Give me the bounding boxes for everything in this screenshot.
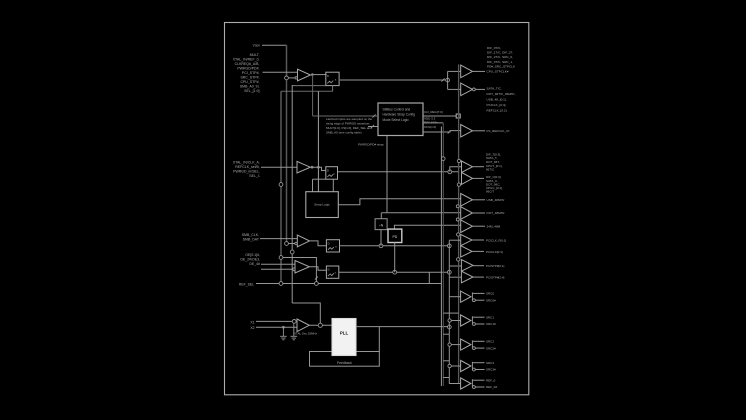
svg-text:Feedback: Feedback	[337, 361, 352, 365]
svg-text:DIF_1T/C, DIF_2T,: DIF_1T/C, DIF_2T,	[487, 51, 513, 55]
svg-text:XTAL_IN/REF_0,: XTAL_IN/REF_0,	[233, 57, 260, 61]
svg-text:SRC2#: SRC2#	[486, 346, 496, 350]
svg-text:OE_2#/OE3,: OE_2#/OE3,	[240, 258, 260, 262]
svg-text:SRC0: SRC0	[486, 292, 494, 296]
svg-text:CPU_STPCLK#: CPU_STPCLK#	[487, 70, 509, 74]
svg-text:24M_48M: 24M_48M	[487, 224, 501, 228]
svg-text:USB_48MHz: USB_48MHz	[487, 198, 505, 202]
svg-text:PWRGD_in/SEL,: PWRGD_in/SEL,	[233, 170, 260, 174]
svg-text:PCI_STP#,: PCI_STP#,	[242, 71, 260, 75]
svg-text:D: D	[328, 268, 330, 272]
svg-text:REFCLK_[0:2]: REFCLK_[0:2]	[487, 109, 507, 113]
svg-text:SRC3: SRC3	[486, 361, 494, 365]
svg-text:SRC3#: SRC3#	[486, 368, 496, 372]
svg-text:SRC2: SRC2	[486, 340, 494, 344]
svg-text:X2: X2	[250, 326, 254, 330]
svg-text:96T/C: 96T/C	[486, 168, 495, 172]
svg-text:CPU_STP#,: CPU_STP#,	[240, 80, 259, 84]
svg-text:PD#_SRC_STPCLK: PD#_SRC_STPCLK	[487, 65, 516, 69]
svg-text:D: D	[327, 168, 329, 172]
svg-text:PD: PD	[393, 235, 398, 239]
svg-text:SRC_STP#,: SRC_STP#,	[240, 75, 259, 79]
svg-text:DOT_96T/C_96MHz,: DOT_96T/C_96MHz,	[487, 92, 516, 96]
svg-text:Mode Select Logic: Mode Select Logic	[383, 118, 410, 122]
svg-text:PWRGD/PD#,: PWRGD/PD#,	[237, 66, 259, 70]
svg-text:D: D	[327, 74, 329, 78]
svg-text:DIF_0T/C,: DIF_0T/C,	[487, 46, 501, 50]
svg-text:CLKREQ#_A/B,: CLKREQ#_A/B,	[235, 62, 260, 66]
svg-text:USB_48_[0:1],: USB_48_[0:1],	[487, 98, 507, 102]
svg-text:XTAL Osc 25MHz: XTAL Osc 25MHz	[294, 331, 317, 335]
svg-text:Strap Logic: Strap Logic	[314, 203, 330, 207]
svg-text:REF_0#: REF_0#	[486, 385, 497, 389]
svg-text:PLL: PLL	[340, 331, 349, 336]
svg-text:SEL_1: SEL_1	[249, 174, 260, 178]
svg-text:CFG[1:0]: CFG[1:0]	[424, 125, 436, 129]
svg-text:OE[0:1]#,: OE[0:1]#,	[245, 253, 260, 257]
svg-text:÷N: ÷N	[379, 224, 384, 228]
svg-text:DIF_3T/C, SRC_1,: DIF_3T/C, SRC_1,	[487, 60, 513, 64]
svg-text:SMB_DAT: SMB_DAT	[243, 237, 260, 241]
svg-text:PCISTP#[0:1]: PCISTP#[0:1]	[486, 264, 505, 268]
svg-text:PCICLK_F[0:1]: PCICLK_F[0:1]	[486, 238, 506, 242]
svg-text:D: D	[328, 241, 330, 245]
svg-text:SMBus Control and: SMBus Control and	[383, 108, 411, 112]
svg-text:DIF_2T/C, SRC_0,: DIF_2T/C, SRC_0,	[487, 55, 513, 59]
svg-text:PCISTP#[2:4]: PCISTP#[2:4]	[486, 275, 505, 279]
svg-text:SEL_[1:0]: SEL_[1:0]	[244, 89, 259, 93]
svg-text:rising edge of PWRGD assertion: rising edge of PWRGD assertion:	[326, 122, 370, 126]
svg-text:PWRGD/PD# strap: PWRGD/PD# strap	[358, 142, 384, 146]
svg-text:SRC1: SRC1	[486, 315, 494, 319]
svg-text:OE_4#: OE_4#	[249, 262, 260, 266]
svg-text:Latched inputs are sampled on: Latched inputs are sampled on the	[326, 117, 372, 121]
svg-text:REF_SEL: REF_SEL	[239, 282, 254, 286]
svg-text:SMB_CLK,: SMB_CLK,	[242, 233, 259, 237]
svg-text:REFCLK_sel/B,: REFCLK_sel/B,	[235, 165, 260, 169]
svg-text:Ctrl_REG[7:0]: Ctrl_REG[7:0]	[424, 110, 443, 114]
svg-text:Hardware Strap Config: Hardware Strap Config	[383, 113, 416, 117]
svg-text:X1: X1	[250, 320, 254, 324]
svg-text:PCICLK[0:4]: PCICLK[0:4]	[486, 250, 503, 254]
svg-text:SATA_T/C,: SATA_T/C,	[487, 86, 502, 90]
svg-text:REF SS%: REF SS%	[424, 120, 438, 124]
svg-text:REF_0: REF_0	[486, 378, 496, 382]
svg-text:PCICLK_[0:4],: PCICLK_[0:4],	[487, 103, 507, 107]
svg-text:MULT,: MULT,	[250, 53, 260, 57]
svg-text:VDDR: VDDR	[253, 44, 261, 48]
svg-text:FS_REFCLK_IO: FS_REFCLK_IO	[487, 129, 510, 133]
svg-text:DOT_48MHz: DOT_48MHz	[487, 211, 506, 215]
svg-text:MULT[1:0], FS[1:0], REF_SEL an: MULT[1:0], FS[1:0], REF_SEL and	[326, 126, 372, 130]
svg-text:SMB_A0_tri,: SMB_A0_tri,	[240, 84, 260, 88]
svg-text:SMB_A0 (see config table): SMB_A0 (see config table)	[326, 130, 362, 134]
svg-text:96C/T: 96C/T	[486, 190, 494, 194]
svg-text:SRC0#: SRC0#	[486, 298, 496, 302]
svg-text:XTAL_IN/CLK_A,: XTAL_IN/CLK_A,	[233, 160, 260, 164]
svg-text:SRC1#: SRC1#	[486, 322, 496, 326]
